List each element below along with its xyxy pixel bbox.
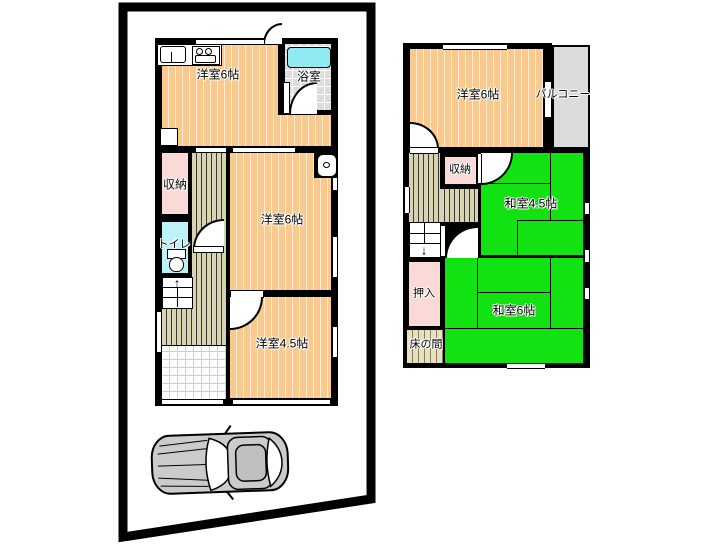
window <box>332 327 338 357</box>
window <box>584 203 590 214</box>
room-label: 和室6帖 <box>493 305 536 318</box>
room-label: 洋室6帖 <box>197 69 240 82</box>
door-leaf-bath <box>283 82 290 114</box>
room-label: バルコニー <box>536 89 591 102</box>
room-label: 浴室 <box>297 71 321 84</box>
cabinet <box>160 128 178 146</box>
window <box>332 178 338 190</box>
stove-burner-left <box>196 48 203 55</box>
stove-burner-right <box>205 48 212 55</box>
opening-hall-top <box>196 147 226 153</box>
room-label: 収納 <box>163 179 187 192</box>
bathtub-icon <box>287 47 331 68</box>
room-label: 収納 <box>449 164 471 177</box>
room-label: 押入 <box>413 288 435 301</box>
door-gap-stairs-2f <box>440 226 446 256</box>
stairs-up-arrow: ↑ <box>174 277 181 290</box>
room-label: 洋室6帖 <box>261 214 304 227</box>
toilet-bowl-icon <box>169 257 184 272</box>
window <box>196 39 264 45</box>
door-gap-washitsu45 <box>477 154 482 183</box>
kitchen-faucet <box>171 52 172 63</box>
window <box>443 44 507 50</box>
hallway-2f <box>409 153 440 222</box>
tatami-line <box>477 292 551 293</box>
room-label: 床の間 <box>410 339 443 352</box>
hallway-2f-band <box>440 189 478 222</box>
room-label: トイレ <box>158 239 191 252</box>
room-label: 和室4.5帖 <box>505 198 558 211</box>
window <box>162 399 223 405</box>
room-label: 洋室4.5帖 <box>256 338 309 351</box>
window <box>507 363 545 369</box>
entrance-genkan <box>162 345 226 399</box>
tatami-line <box>517 220 583 221</box>
car-icon <box>140 424 300 504</box>
tatami-line <box>445 328 583 329</box>
washbasin-drain <box>323 162 330 168</box>
property-boundary <box>0 0 710 550</box>
window <box>584 250 590 262</box>
window <box>332 237 338 277</box>
stairs-down-arrow: ↓ <box>421 244 428 257</box>
door-gap-west6-2f <box>410 147 438 154</box>
floorplan-canvas: ↑ 洋室6帖 浴室 収納 トイレ 洋室6帖 洋室4.5帖 <box>0 0 710 550</box>
stove-grill <box>195 55 216 63</box>
room-label: 洋室6帖 <box>457 89 500 102</box>
stair-step-line <box>424 222 425 243</box>
door-leaf-hall <box>193 246 224 253</box>
tatami-line <box>517 220 518 255</box>
window <box>404 187 410 213</box>
tatami-line <box>477 258 478 328</box>
hallway-1f-lower <box>162 308 226 345</box>
window <box>233 399 330 405</box>
tatami-line <box>550 258 551 328</box>
window <box>156 312 162 352</box>
kitchen-sink-icon <box>160 46 186 63</box>
opening-rooms <box>233 147 295 153</box>
window <box>584 288 590 299</box>
